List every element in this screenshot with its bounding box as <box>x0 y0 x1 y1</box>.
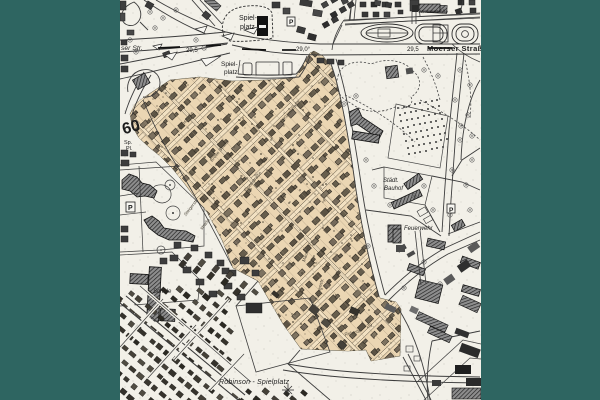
svg-text:P: P <box>128 205 133 212</box>
svg-text:29,0°: 29,0° <box>296 47 311 53</box>
svg-text:Pl.: Pl. <box>126 146 133 152</box>
svg-text:Schule: Schule <box>153 289 172 295</box>
svg-text:Moerser Straße: Moerser Straße <box>427 44 487 53</box>
svg-text:29,5: 29,5 <box>407 47 419 53</box>
svg-text:P: P <box>449 207 454 214</box>
svg-text:P: P <box>289 19 294 26</box>
svg-text:Wernerstraße: Wernerstraße <box>420 9 448 14</box>
svg-text:Bauhof: Bauhof <box>384 186 404 192</box>
svg-text:Spiel-: Spiel- <box>221 61 238 68</box>
svg-text:29,5: 29,5 <box>186 48 198 54</box>
svg-text:Spiel-: Spiel- <box>239 15 258 22</box>
svg-text:Feuerwehr: Feuerwehr <box>404 226 434 232</box>
svg-text:ser Str.: ser Str. <box>121 45 143 52</box>
svg-text:platz: platz <box>224 69 238 76</box>
svg-text:Städt.: Städt. <box>383 178 399 184</box>
svg-text:Robinson - Spielplatz: Robinson - Spielplatz <box>219 379 290 386</box>
svg-text:platz: platz <box>240 24 255 31</box>
